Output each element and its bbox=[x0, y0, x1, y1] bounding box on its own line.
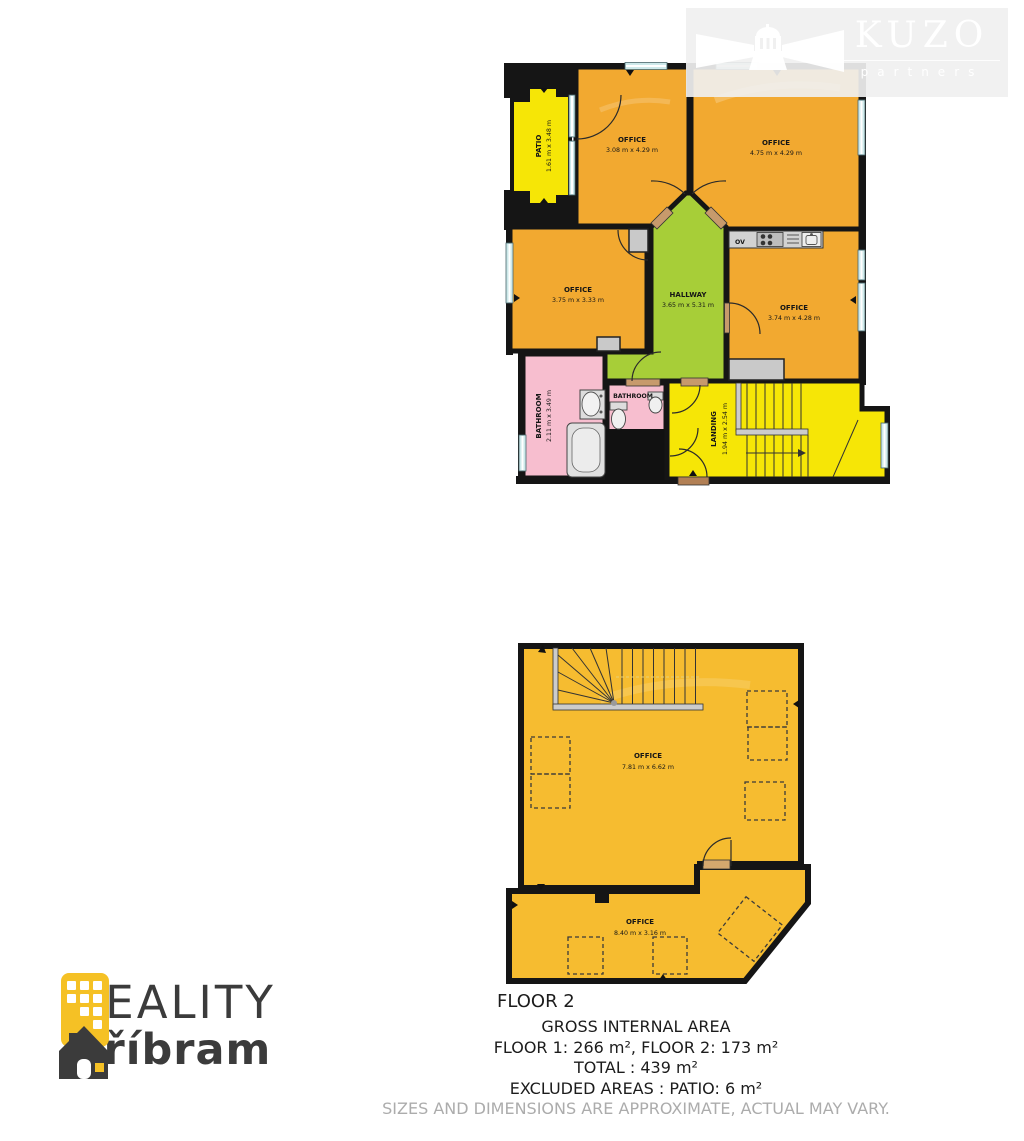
hallway-dims: 3.65 m x 5.31 m bbox=[662, 302, 714, 309]
office1-label: OFFICE bbox=[618, 136, 646, 144]
summary-floors: FLOOR 1: 266 m², FLOOR 2: 173 m² bbox=[376, 1038, 896, 1059]
kuzo-logo: KUZO partners bbox=[686, 8, 1008, 97]
floor2-wall-notch bbox=[595, 888, 609, 903]
patio-label: PATIO bbox=[535, 135, 543, 158]
floor1-plan: OV bbox=[498, 56, 894, 492]
summary-title: GROSS INTERNAL AREA bbox=[376, 1017, 896, 1038]
patio-dims: 1.61 m x 3.48 m bbox=[546, 120, 553, 172]
floor2-office-main-dims: 7.81 m x 6.62 m bbox=[622, 764, 674, 771]
area-summary: GROSS INTERNAL AREA FLOOR 1: 266 m², FLO… bbox=[376, 1017, 896, 1120]
floor2-office-main-label: OFFICE bbox=[634, 752, 662, 760]
office3-dims: 3.75 m x 3.33 m bbox=[552, 297, 604, 304]
kuzo-tagline: partners bbox=[844, 60, 1000, 79]
hallway-label: HALLWAY bbox=[670, 291, 708, 299]
kitchen-unit-label: OV bbox=[735, 239, 745, 246]
floor2-door-sill bbox=[703, 860, 730, 869]
summary-excluded: EXCLUDED AREAS : PATIO: 6 m² bbox=[376, 1079, 896, 1100]
floor2-caption: FLOOR 2 bbox=[497, 991, 575, 1012]
landing-label: LANDING bbox=[710, 411, 718, 447]
office3-label: OFFICE bbox=[564, 286, 592, 294]
floor2-office-lower-label: OFFICE bbox=[626, 918, 654, 926]
floor2-plan: OFFICE 7.81 m x 6.62 m OFFICE 8.40 m x 3… bbox=[500, 635, 820, 995]
landing-dims: 1.94 m x 2.54 m bbox=[722, 403, 729, 455]
bathroom2-label: BATHROOM bbox=[613, 393, 653, 400]
toilet-icon bbox=[610, 402, 627, 429]
floor1-void bbox=[605, 429, 673, 480]
office2-dims: 4.75 m x 4.29 m bbox=[750, 150, 802, 157]
floorplan-page: OV bbox=[0, 0, 1024, 1141]
bathroom1-dims: 2.11 m x 3.49 m bbox=[546, 390, 553, 442]
floor2-office-lower-dims: 8.40 m x 3.16 m bbox=[614, 930, 666, 937]
agency-logo: REALITY Příbram bbox=[57, 968, 357, 1086]
agency-building-icon bbox=[57, 971, 115, 1083]
bathroom1-label: BATHROOM bbox=[535, 393, 543, 438]
lighthouse-icon bbox=[692, 18, 848, 88]
kuzo-name: KUZO bbox=[844, 14, 1000, 58]
summary-disclaimer: SIZES AND DIMENSIONS ARE APPROXIMATE, AC… bbox=[376, 1099, 896, 1120]
floor1-kitchen-unit: OV bbox=[729, 231, 823, 248]
bathtub-icon bbox=[567, 423, 605, 477]
office2-label: OFFICE bbox=[762, 139, 790, 147]
summary-total: TOTAL : 439 m² bbox=[376, 1058, 896, 1079]
office1-dims: 3.08 m x 4.29 m bbox=[606, 147, 658, 154]
bathroom-sink-icon bbox=[580, 390, 605, 419]
office4-dims: 3.74 m x 4.28 m bbox=[768, 315, 820, 322]
office4-label: OFFICE bbox=[780, 304, 808, 312]
